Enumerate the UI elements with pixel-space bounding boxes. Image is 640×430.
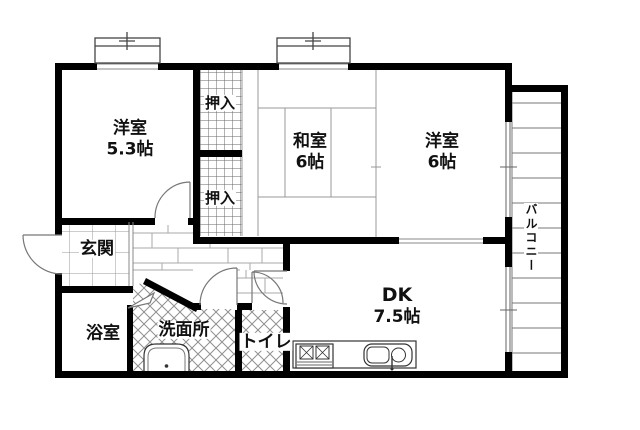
room-label-balcony: バルコニー: [524, 203, 538, 273]
room-label-closet-lower: 押入: [204, 190, 236, 206]
wall-segment: [55, 218, 155, 225]
balcony-wall: [512, 85, 568, 92]
room-label-japanese: 和室 6帖: [293, 131, 327, 172]
room-label-toilet: トイレ: [240, 333, 293, 351]
wall-segment: [237, 303, 252, 310]
floor-plan-drawing: [0, 0, 640, 430]
room-label-bathroom: 浴室: [86, 324, 120, 345]
room-name: トイレ: [241, 332, 292, 352]
wall-segment: [55, 371, 568, 378]
wall-segment: [158, 63, 279, 70]
sliding-door-opening: [399, 239, 483, 243]
wall-segment: [483, 237, 512, 244]
room-size: 6帖: [425, 152, 459, 173]
sink-icon: [364, 344, 412, 371]
room-size: 5.3帖: [106, 139, 153, 160]
room-name: バルコニー: [524, 203, 538, 273]
balcony-wall: [561, 85, 568, 378]
walls: [55, 63, 568, 378]
dk-door-icon: [254, 271, 287, 304]
room-label-western2: 洋室 6帖: [425, 131, 459, 172]
wall-segment: [55, 63, 62, 235]
entrance-step: [129, 222, 133, 286]
room-name: 玄関: [80, 239, 114, 259]
room-size: 7.5帖: [373, 307, 420, 328]
front-door-icon: [23, 235, 62, 274]
wall-segment: [283, 244, 290, 271]
wall-segment: [505, 63, 512, 122]
room-door-icon: [155, 182, 190, 218]
room-label-western1: 洋室 5.3帖: [106, 118, 153, 159]
wall-segment: [348, 63, 512, 70]
floor-plan: 洋室 5.3帖 押入 押入 和室 6帖 洋室 6帖 DK 7.5帖 玄関 浴室 …: [0, 0, 640, 430]
room-name: 押入: [205, 94, 235, 112]
room-name: 和室: [293, 131, 327, 151]
wall-segment: [188, 218, 200, 225]
stove-icon: [296, 344, 333, 368]
wall-segment: [193, 237, 399, 244]
kitchen-counter: [293, 341, 416, 371]
room-name: 押入: [205, 189, 235, 207]
room-label-washroom: 洗面所: [158, 321, 211, 339]
wall-segment: [127, 305, 133, 371]
room-name: 洋室: [425, 131, 459, 151]
door-swing-area: [193, 268, 237, 303]
room-size: 6帖: [293, 152, 327, 173]
room-label-entrance: 玄関: [79, 240, 115, 258]
room-name: 浴室: [86, 324, 120, 344]
wall-segment: [505, 352, 512, 378]
room-label-dk: DK 7.5帖: [373, 284, 420, 328]
room-name: 洋室: [113, 118, 147, 138]
room-name: DK: [382, 284, 413, 306]
wall-segment: [193, 150, 242, 157]
room-name: 洗面所: [159, 320, 210, 340]
washbasin-icon: [144, 344, 189, 371]
wall-segment: [55, 286, 133, 293]
window-icon: [500, 267, 517, 352]
room-label-closet-upper: 押入: [204, 95, 236, 111]
